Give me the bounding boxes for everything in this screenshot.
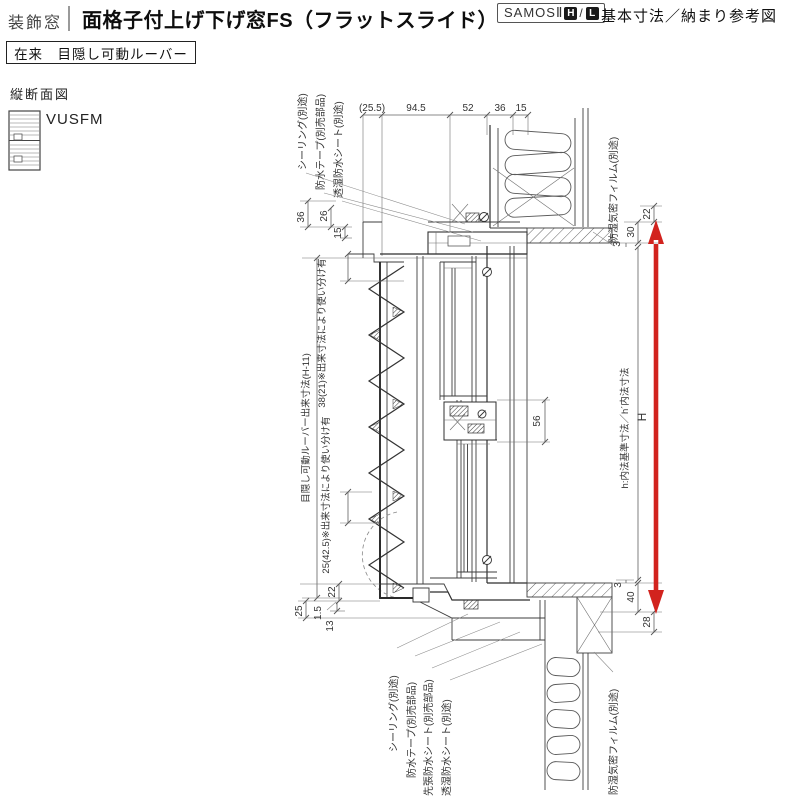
dim-56: 56	[532, 415, 543, 427]
louver-slats	[362, 266, 404, 598]
frame-screw-top	[483, 268, 492, 277]
dim-1-5-sill-left: 1.5	[313, 606, 324, 620]
upper-sash	[440, 262, 487, 400]
callout-vapor-film-bottom: 防湿気密フィルム(別途)	[607, 689, 620, 795]
dim-30-right: 30	[626, 226, 637, 238]
head-interior-finish-hatch	[527, 228, 612, 243]
sill-gasket	[464, 600, 478, 609]
dim-52: 52	[462, 103, 474, 114]
meeting-rail-dim: 56	[497, 397, 550, 445]
head-frame	[348, 204, 527, 262]
insulation-top	[504, 130, 571, 218]
dim-25-sill-left: 25	[294, 605, 305, 617]
dim-15-left: 15	[333, 227, 344, 239]
frame-screw-bottom	[483, 556, 492, 565]
dim-13-sill-left: 13	[325, 620, 336, 632]
height-arrow: H	[635, 220, 664, 614]
head-wall	[490, 108, 612, 243]
head-gasket	[466, 213, 479, 222]
note-lower: 25(42.5)※出来寸法により使い分け有	[320, 416, 332, 573]
louver-dims: 目隠し可動ルーバー出来寸法(H-11) 38(21)※出来寸法により使い分け有 …	[300, 251, 404, 601]
callout-waterproof-tape-top: 防水テープ(別売部品)	[314, 94, 327, 190]
height-arrow-shape	[648, 220, 664, 614]
callout-pre-applied-sheet-bottom: 先張防水シート(別売部品)	[422, 679, 435, 796]
callout-sealing-top: シーリング(別途)	[296, 93, 309, 170]
dim-94-5: 94.5	[406, 103, 426, 114]
dim-40-right: 40	[626, 591, 637, 603]
dim-26-left: 26	[319, 210, 330, 222]
dim-36-top: 36	[494, 103, 506, 114]
cross-section-drawing: (25.5) 94.5 52 36 15	[0, 0, 800, 800]
dim-louver-height: 目隠し可動ルーバー出来寸法(H-11)	[300, 353, 312, 503]
dim-inner-height-label: h:内法基準寸法／h´内法寸法	[619, 368, 631, 489]
dim-3-sill-right: 3	[613, 582, 624, 588]
dim-22-right: 22	[642, 208, 653, 220]
callout-waterproof-tape-bottom: 防水テープ(別売部品)	[405, 682, 418, 778]
note-upper: 38(21)※出来寸法により使い分け有	[316, 258, 328, 407]
dim-22-sill-left: 22	[327, 586, 338, 598]
callout-sealing-bottom: シーリング(別途)	[387, 675, 400, 752]
insulation-bottom	[546, 657, 580, 781]
window-body	[380, 243, 527, 598]
head-screw	[480, 213, 489, 222]
sill-wall	[545, 597, 612, 790]
dim-height-H: H	[635, 413, 649, 422]
dim-28-right: 28	[642, 616, 653, 628]
dim-25-5: (25.5)	[359, 103, 385, 114]
meeting-rail	[444, 402, 496, 440]
head-left-dims: 36 26 15	[296, 198, 352, 241]
dim-15-top: 15	[515, 103, 527, 114]
sill-interior-finish-hatch	[527, 583, 612, 597]
dim-36-left: 36	[296, 211, 307, 223]
callout-vapor-film-top: 防湿気密フィルム(別途)	[607, 137, 620, 243]
callout-breathable-sheet-bottom: 透湿防水シート(別途)	[440, 699, 453, 796]
